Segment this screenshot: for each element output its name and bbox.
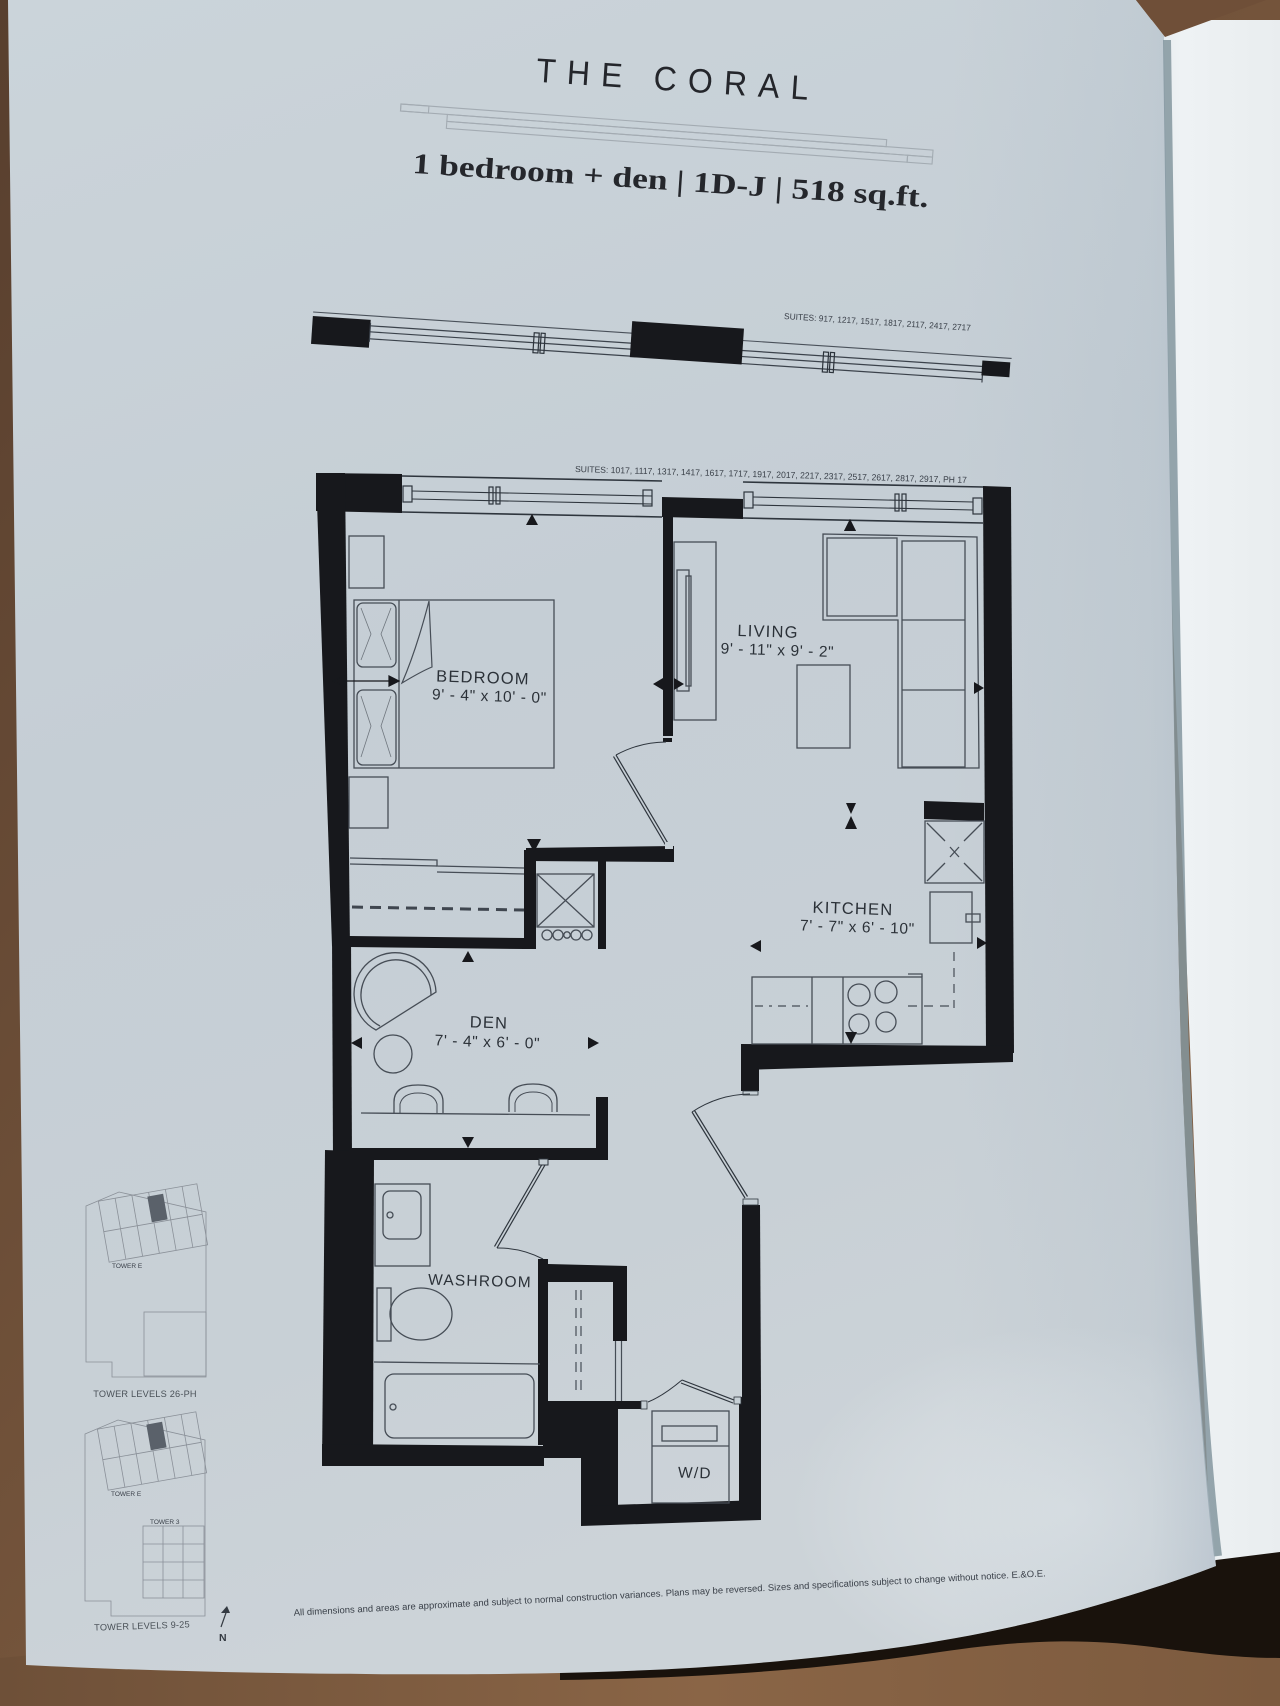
svg-text:KITCHEN: KITCHEN (812, 899, 893, 920)
svg-text:W/D: W/D (678, 1465, 712, 1483)
svg-text:TOWER E: TOWER E (111, 1491, 142, 1498)
svg-text:DEN: DEN (469, 1013, 508, 1032)
svg-text:TOWER LEVELS 26-PH: TOWER LEVELS 26-PH (93, 1389, 197, 1399)
svg-text:N: N (219, 1632, 227, 1644)
svg-text:LIVING: LIVING (737, 622, 799, 642)
svg-text:7' - 4" x 6' - 0": 7' - 4" x 6' - 0" (434, 1032, 540, 1052)
svg-text:WASHROOM: WASHROOM (428, 1272, 532, 1292)
svg-text:TOWER 3: TOWER 3 (150, 1519, 180, 1526)
svg-text:9' - 11" x 9' - 2": 9' - 11" x 9' - 2" (720, 640, 834, 661)
svg-text:BEDROOM: BEDROOM (436, 668, 530, 689)
svg-text:9' - 4" x 10' - 0": 9' - 4" x 10' - 0" (432, 686, 547, 707)
svg-text:7' - 7" x 6' - 10": 7' - 7" x 6' - 10" (800, 917, 915, 938)
svg-text:TOWER E: TOWER E (112, 1263, 143, 1270)
